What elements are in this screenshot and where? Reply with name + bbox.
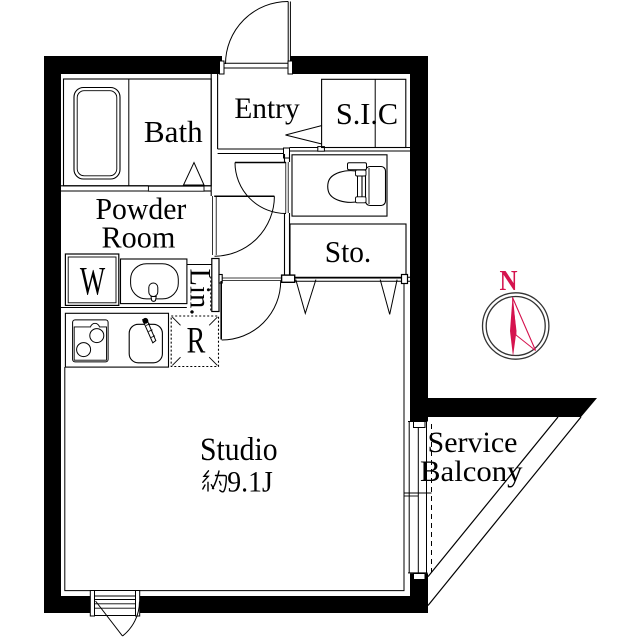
svg-text:Room: Room [102, 219, 176, 254]
svg-text:Entry: Entry [234, 92, 299, 125]
svg-text:Lin.: Lin. [183, 269, 216, 316]
svg-text:Balcony: Balcony [420, 455, 523, 488]
svg-text:Bath: Bath [144, 114, 203, 149]
svg-text:N: N [500, 266, 518, 297]
svg-text:Studio: Studio [200, 432, 278, 468]
svg-text:9.1J: 9.1J [227, 466, 273, 499]
svg-text:R: R [187, 321, 206, 362]
svg-text:S.I.C: S.I.C [336, 96, 398, 131]
svg-text:W: W [80, 259, 105, 304]
svg-text:Sto.: Sto. [325, 234, 372, 269]
